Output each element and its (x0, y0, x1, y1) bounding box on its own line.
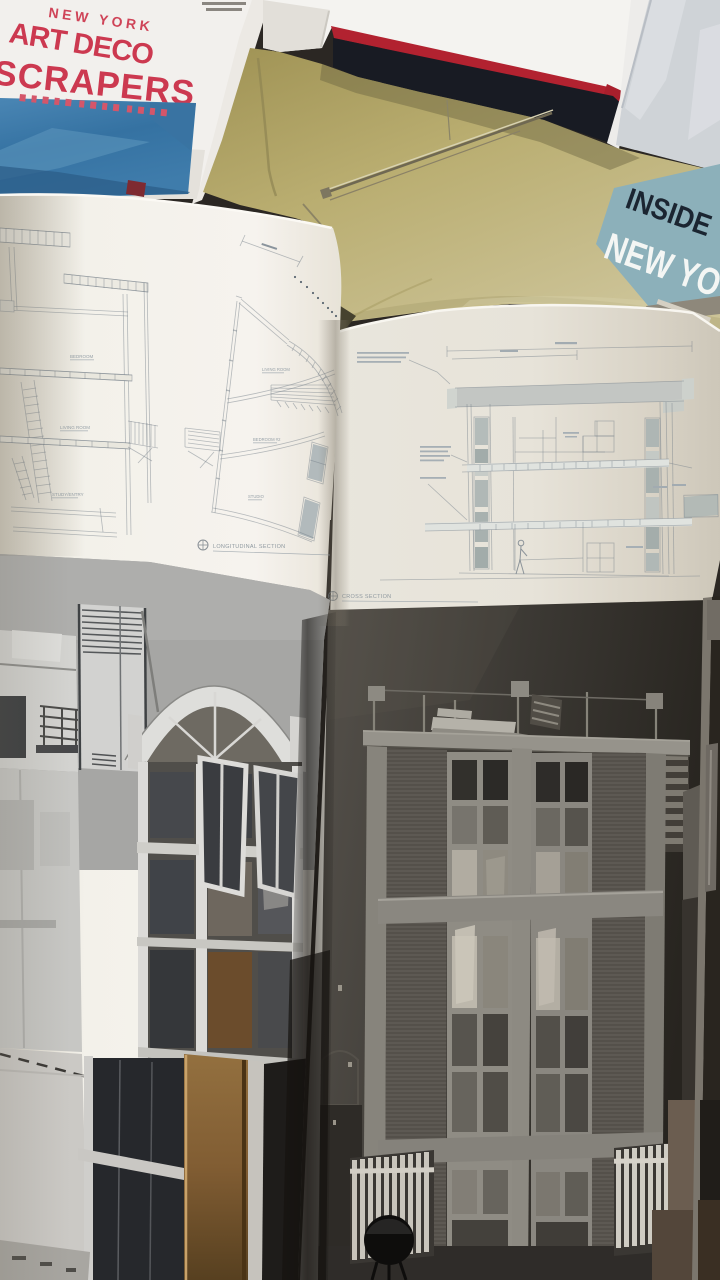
svg-text:LIVING ROOM: LIVING ROOM (262, 367, 290, 372)
svg-text:STUDIO: STUDIO (248, 494, 265, 499)
svg-text:BEDROOM #2: BEDROOM #2 (253, 437, 281, 442)
svg-text:LONGITUDINAL SECTION: LONGITUDINAL SECTION (213, 544, 285, 550)
